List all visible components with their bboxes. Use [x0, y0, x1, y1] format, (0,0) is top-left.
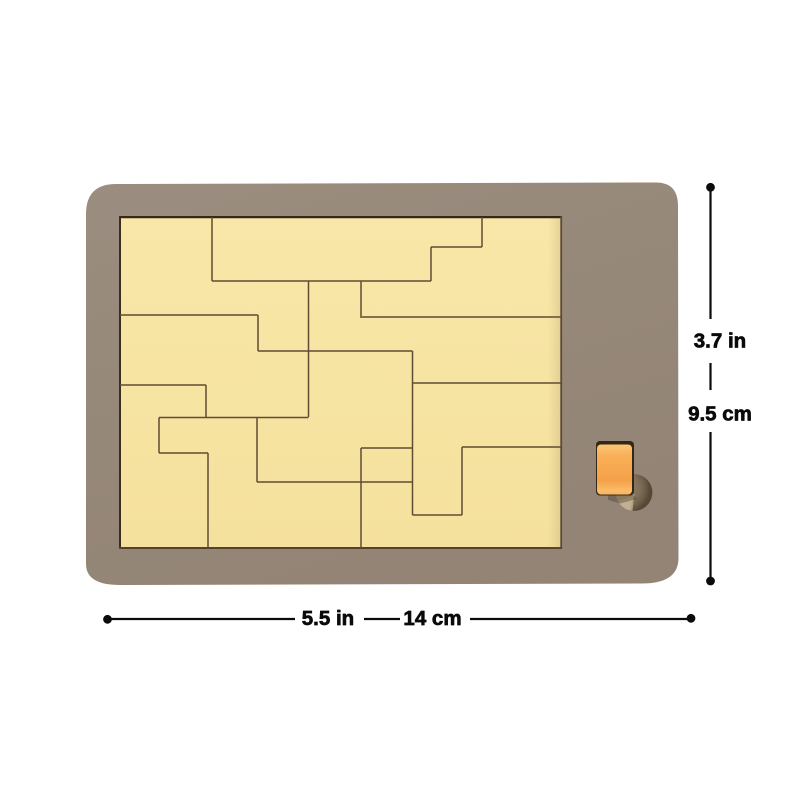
svg-text:3.7 in: 3.7 in [694, 330, 746, 353]
svg-text:14 cm: 14 cm [403, 607, 461, 630]
svg-text:5.5 in: 5.5 in [302, 607, 354, 630]
svg-text:9.5 cm: 9.5 cm [688, 403, 752, 426]
